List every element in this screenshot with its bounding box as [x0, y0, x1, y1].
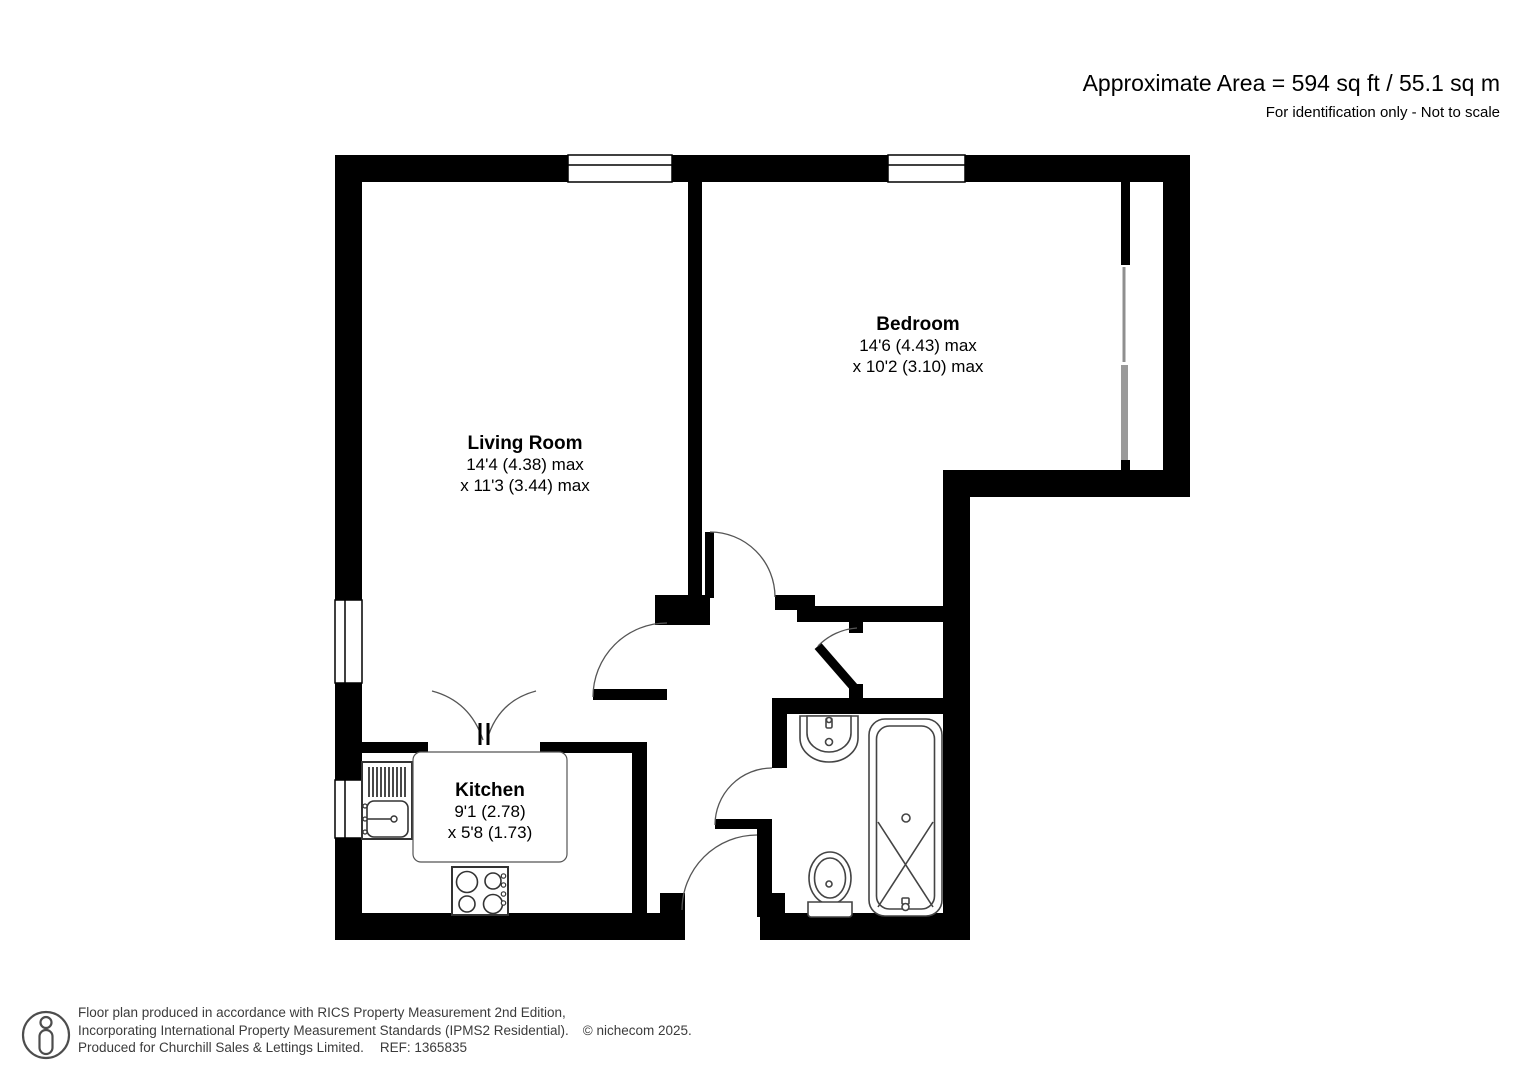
footer-line1: Floor plan produced in accordance with R… [78, 1004, 692, 1022]
wardrobe-sliding-doors [1121, 182, 1130, 470]
kitchen-dim2: x 5'8 (1.73) [370, 822, 610, 843]
bathroom-door [715, 768, 772, 829]
approximate-area-text: Approximate Area = 594 sq ft / 55.1 sq m [1083, 70, 1500, 97]
living-room-door [593, 623, 667, 700]
window-living-room-left [335, 600, 362, 683]
bedroom-name: Bedroom [788, 314, 1048, 335]
bedroom-dim2: x 10'2 (3.10) max [788, 356, 1048, 377]
person-icon [20, 1008, 72, 1062]
footer-line2: Incorporating International Property Mea… [78, 1022, 692, 1040]
bedroom-dim1: 14'6 (4.43) max [788, 335, 1048, 356]
window-kitchen-left [335, 780, 362, 838]
window-bedroom-top [888, 155, 965, 182]
window-living-room-top [568, 155, 672, 182]
toilet [808, 852, 852, 917]
floorplan-page: Approximate Area = 594 sq ft / 55.1 sq m… [0, 0, 1527, 1080]
kitchen-name: Kitchen [370, 780, 610, 801]
bedroom-label: Bedroom 14'6 (4.43) max x 10'2 (3.10) ma… [788, 314, 1048, 377]
floorplan-drawing [0, 0, 1527, 1080]
living-room-dim2: x 11'3 (3.44) max [395, 475, 655, 496]
footer-line3: Produced for Churchill Sales & Lettings … [78, 1039, 692, 1057]
bedroom-door [705, 532, 775, 598]
front-door [682, 835, 757, 910]
not-to-scale-note: For identification only - Not to scale [1266, 104, 1500, 121]
living-room-dim1: 14'4 (4.38) max [395, 454, 655, 475]
bathtub [869, 719, 942, 916]
living-room-label: Living Room 14'4 (4.38) max x 11'3 (3.44… [395, 433, 655, 496]
living-room-name: Living Room [395, 433, 655, 454]
kitchen-double-doors [432, 691, 536, 745]
reference-number: REF: 1365835 [380, 1040, 467, 1055]
footer-line2-text: Incorporating International Property Mea… [78, 1023, 569, 1038]
copyright-text: © nichecom 2025. [583, 1023, 692, 1038]
footer-disclaimer: Floor plan produced in accordance with R… [78, 1004, 692, 1057]
footer-line3-text: Produced for Churchill Sales & Lettings … [78, 1040, 364, 1055]
bathroom-sink [800, 716, 858, 762]
hob [452, 867, 508, 915]
kitchen-label: Kitchen 9'1 (2.78) x 5'8 (1.73) [370, 780, 610, 843]
hall-angled-door [818, 628, 858, 692]
kitchen-dim1: 9'1 (2.78) [370, 801, 610, 822]
